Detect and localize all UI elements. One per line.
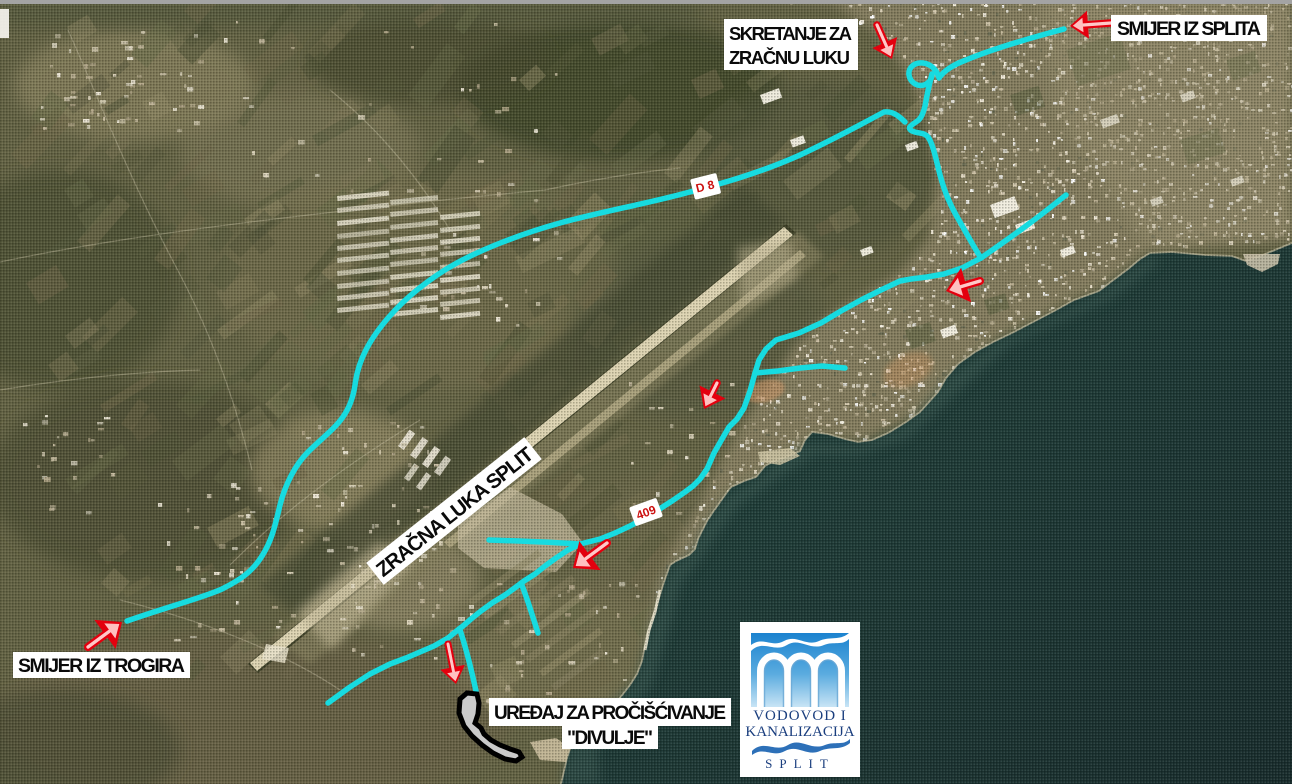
svg-text:SMIJER IZ SPLITA: SMIJER IZ SPLITA	[1117, 18, 1261, 40]
svg-text:SPLIT: SPLIT	[765, 756, 835, 771]
svg-text:KANALIZACIJA: KANALIZACIJA	[745, 724, 854, 740]
svg-text:VODOVOD I: VODOVOD I	[753, 708, 847, 724]
svg-text:SKRETANJE ZA: SKRETANJE ZA	[729, 23, 852, 44]
svg-text:UREĐAJ ZA PROČIŠĆIVANJE: UREĐAJ ZA PROČIŠĆIVANJE	[494, 702, 726, 724]
svg-text:SMIJER IZ TROGIRA: SMIJER IZ TROGIRA	[18, 655, 185, 677]
svg-text:ZRAČNU LUKU: ZRAČNU LUKU	[729, 47, 850, 68]
svg-text:"DIVULJE": "DIVULJE"	[567, 728, 653, 749]
